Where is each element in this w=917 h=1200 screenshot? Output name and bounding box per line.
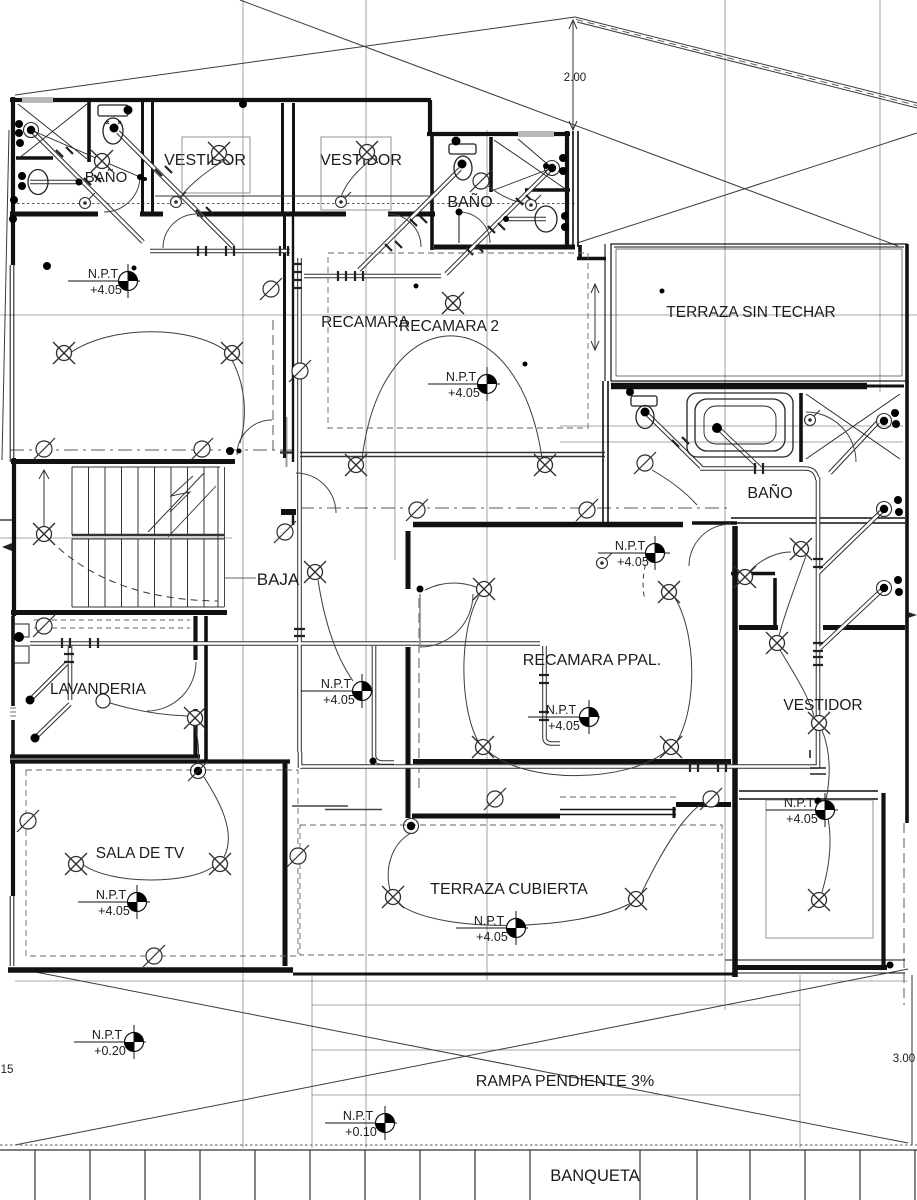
- svg-text:N.P.T: N.P.T: [343, 1109, 374, 1123]
- svg-text:+4.05: +4.05: [448, 386, 480, 400]
- svg-text:SALA DE TV: SALA DE TV: [96, 845, 185, 862]
- svg-text:N.P.T: N.P.T: [88, 267, 119, 281]
- svg-text:+0.10: +0.10: [345, 1125, 377, 1139]
- svg-text:RAMPA PENDIENTE 3%: RAMPA PENDIENTE 3%: [476, 1073, 654, 1090]
- svg-text:N.P.T: N.P.T: [546, 703, 577, 717]
- svg-text:RECAMARA 2: RECAMARA 2: [399, 318, 499, 335]
- svg-text:+4.05: +4.05: [90, 283, 122, 297]
- svg-text:N.P.T: N.P.T: [615, 539, 646, 553]
- svg-text:RECAMARA: RECAMARA: [321, 314, 410, 331]
- svg-text:N.P.T: N.P.T: [321, 677, 352, 691]
- svg-text:N.P.T: N.P.T: [96, 888, 127, 902]
- svg-text:TERRAZA CUBIERTA: TERRAZA CUBIERTA: [430, 881, 588, 898]
- svg-text:N.P.T: N.P.T: [92, 1028, 123, 1042]
- svg-text:15: 15: [1, 1064, 14, 1076]
- svg-text:BANQUETA: BANQUETA: [550, 1167, 640, 1185]
- svg-text:N.P.T: N.P.T: [446, 370, 477, 384]
- svg-text:VESTIDOR: VESTIDOR: [783, 697, 862, 714]
- svg-text:+4.05: +4.05: [548, 719, 580, 733]
- svg-text:N.P.T: N.P.T: [784, 796, 815, 810]
- svg-text:+4.05: +4.05: [617, 555, 649, 569]
- svg-text:BAJA: BAJA: [257, 570, 300, 589]
- svg-text:+4.05: +4.05: [323, 693, 355, 707]
- svg-text:TERRAZA SIN TECHAR: TERRAZA SIN TECHAR: [666, 304, 835, 321]
- svg-text:RECAMARA PPAL.: RECAMARA PPAL.: [523, 652, 661, 669]
- svg-text:+0.20: +0.20: [94, 1044, 126, 1058]
- svg-text:BAÑO: BAÑO: [447, 191, 492, 211]
- svg-text:2.00: 2.00: [564, 72, 586, 84]
- svg-text:+4.05: +4.05: [786, 812, 818, 826]
- svg-text:N.P.T: N.P.T: [474, 914, 505, 928]
- svg-text:BAÑO: BAÑO: [747, 482, 792, 502]
- svg-text:VESTIDOR: VESTIDOR: [164, 152, 246, 169]
- svg-text:+4.05: +4.05: [98, 904, 130, 918]
- svg-text:+4.05: +4.05: [476, 930, 508, 944]
